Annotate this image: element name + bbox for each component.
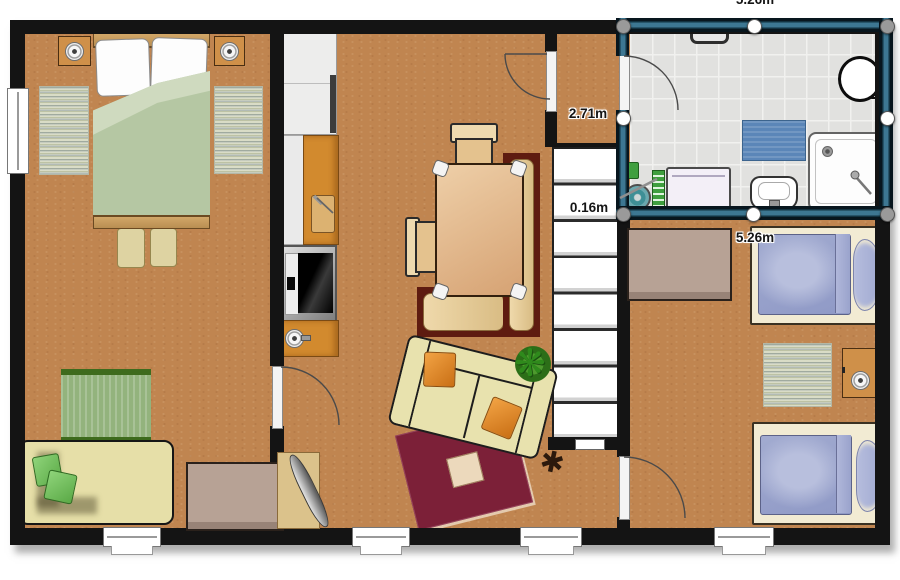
bedside-rug-left[interactable] xyxy=(39,86,89,175)
duvet-fold xyxy=(835,234,850,313)
cabinet-handle xyxy=(330,75,336,133)
bench-cushion xyxy=(423,293,504,331)
nightstand-right-bedroom[interactable] xyxy=(842,348,877,398)
counter-sink-section[interactable] xyxy=(281,320,339,357)
kitchen-unit[interactable] xyxy=(281,29,337,355)
faucet-spout xyxy=(301,335,311,341)
window-left-wall[interactable] xyxy=(7,88,29,174)
desk-right-bedroom[interactable] xyxy=(627,228,732,301)
lamp-icon xyxy=(220,42,239,61)
selection-handle-corner-br[interactable] xyxy=(880,207,895,222)
interior-wall-hall-upper[interactable] xyxy=(545,33,557,52)
coat-stand[interactable]: ✱ xyxy=(538,446,572,480)
double-bed[interactable] xyxy=(93,33,210,227)
stairs-rail xyxy=(575,439,605,450)
sideboard-left[interactable] xyxy=(186,462,284,531)
selection-handle-mid-right[interactable] xyxy=(880,111,895,126)
plant-icon: ❋ xyxy=(514,344,546,382)
nightstand-left[interactable] xyxy=(58,36,91,66)
cutting-board[interactable] xyxy=(311,195,335,233)
window-bottom-3[interactable] xyxy=(520,527,582,547)
counter-white[interactable] xyxy=(281,135,304,245)
window-bottom-2[interactable] xyxy=(352,527,410,547)
selection-handle-corner-tl[interactable] xyxy=(616,19,631,34)
door-bedroom-right[interactable] xyxy=(619,456,630,520)
green-cushion xyxy=(43,469,78,504)
duvet-fold xyxy=(836,435,851,513)
lamp-icon xyxy=(851,371,870,390)
measurement-left-wall: 2.71m xyxy=(561,105,615,122)
shower-tray[interactable] xyxy=(808,132,884,211)
bath-mat[interactable] xyxy=(742,120,806,161)
oven-window xyxy=(287,277,295,290)
ironing-board[interactable] xyxy=(277,452,320,529)
cooktop xyxy=(298,253,333,313)
measurement-step-wall: 0.16m xyxy=(562,199,616,216)
floor-plan-canvas: ❋ ✱ xyxy=(0,0,900,580)
selection-handle-corner-tr[interactable] xyxy=(880,19,895,34)
selection-handle-corner-bl[interactable] xyxy=(616,207,631,222)
stove[interactable] xyxy=(281,245,337,322)
selection-handle-mid-top[interactable] xyxy=(747,19,762,34)
lamp-icon xyxy=(65,42,84,61)
selection-handle-mid-left[interactable] xyxy=(616,111,631,126)
bedside-rug-right[interactable] xyxy=(214,86,263,174)
door-bathroom[interactable] xyxy=(619,55,630,113)
footboard xyxy=(93,215,210,229)
interior-wall-bedroom-upper[interactable] xyxy=(270,33,284,366)
coat-stand-icon: ✱ xyxy=(537,446,567,479)
nightstand-knob xyxy=(842,367,845,373)
door-bedroom-left[interactable] xyxy=(272,366,283,429)
measurement-bottom-wall: 5.26m xyxy=(727,229,783,246)
measurement-top-wall: 5.26m xyxy=(716,0,794,8)
washing-machine[interactable] xyxy=(666,167,731,211)
selection-handle-mid-bottom[interactable] xyxy=(746,207,761,222)
bathroom-wall-left-lower-selected[interactable] xyxy=(616,110,629,220)
rug-center-square xyxy=(446,451,484,488)
orange-pillow xyxy=(480,396,523,440)
mop[interactable] xyxy=(652,170,665,208)
dining-table[interactable] xyxy=(435,163,524,297)
kitchen-cabinets[interactable] xyxy=(281,29,337,135)
shower-drain xyxy=(822,146,833,157)
staircase[interactable] xyxy=(552,147,626,442)
potted-plant[interactable]: ❋ xyxy=(512,342,554,386)
pouf[interactable] xyxy=(150,228,177,267)
pouf[interactable] xyxy=(117,228,145,268)
single-bed-bottom[interactable] xyxy=(752,422,883,525)
pillow xyxy=(95,38,151,97)
window-bottom-4[interactable] xyxy=(714,527,774,547)
nightstand-right[interactable] xyxy=(214,36,245,66)
green-striped-rug[interactable] xyxy=(61,369,151,443)
interior-wall-hall-lower[interactable] xyxy=(545,110,557,147)
corner-sofa[interactable] xyxy=(18,440,174,525)
door-living-hall[interactable] xyxy=(546,51,557,112)
stairs-top-edge xyxy=(550,143,622,147)
orange-pillow xyxy=(423,352,456,388)
rug-right-bedroom[interactable] xyxy=(763,343,832,407)
window-bottom-1[interactable] xyxy=(103,527,161,547)
